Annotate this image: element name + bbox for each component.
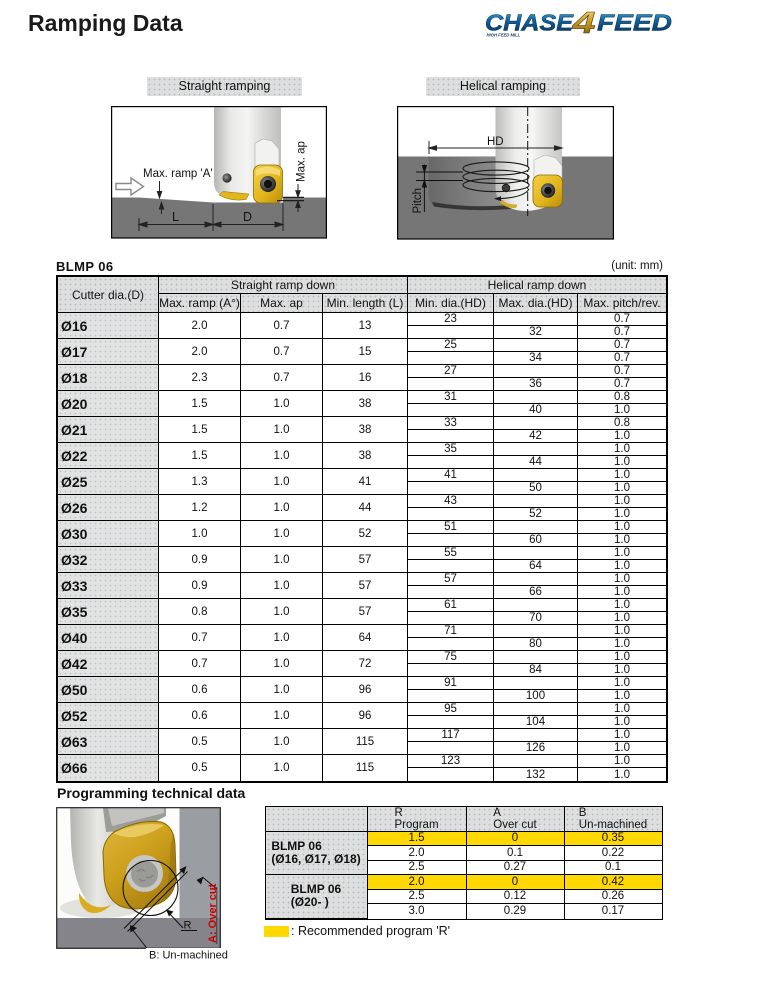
svg-text:B: Un-machined: B: Un-machined — [149, 950, 228, 962]
svg-text:HIGH FEED MILL: HIGH FEED MILL — [487, 33, 521, 38]
svg-text:R: R — [184, 920, 192, 932]
svg-text:Max. ap: Max. ap — [296, 141, 308, 182]
svg-text:FEED: FEED — [597, 10, 672, 36]
svg-text:Max. ramp 'A': Max. ramp 'A' — [143, 168, 213, 180]
svg-text:Pitch: Pitch — [412, 188, 424, 214]
svg-text:L: L — [172, 210, 179, 224]
svg-text:D: D — [243, 210, 252, 224]
svg-text:4: 4 — [571, 8, 595, 40]
svg-text:HD: HD — [487, 136, 504, 148]
svg-text:CHASE: CHASE — [485, 10, 574, 36]
